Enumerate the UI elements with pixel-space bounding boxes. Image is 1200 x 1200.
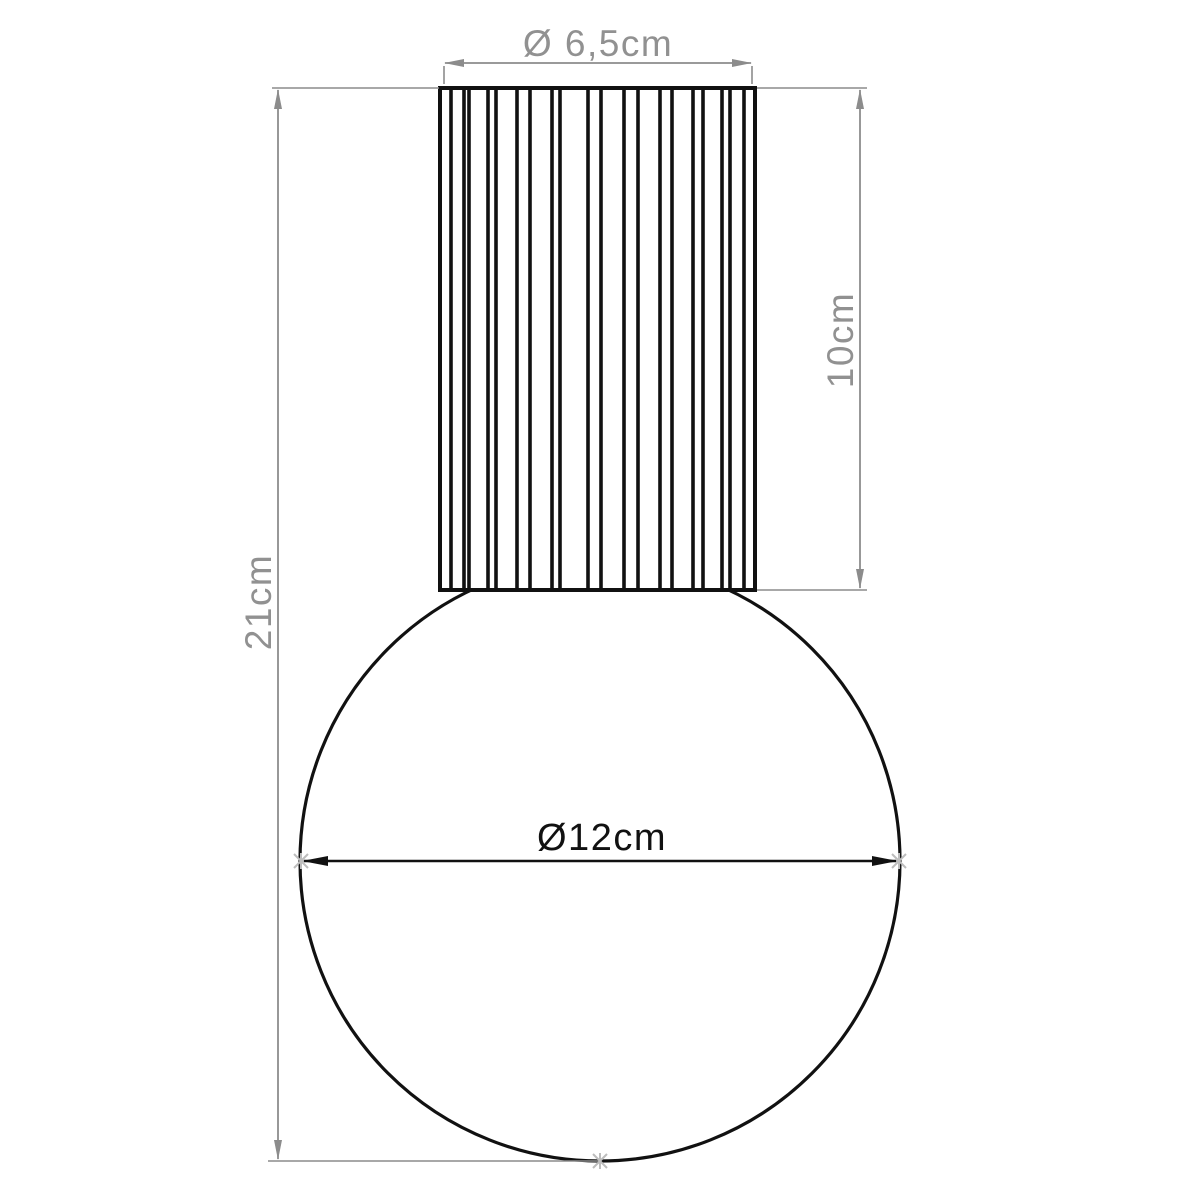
lamp-dimension-drawing: Ø 6,5cm 21cm 10cm Ø12cm: [0, 0, 1200, 1200]
arrow-right-icon: [732, 59, 752, 67]
total-height-label: 21cm: [238, 554, 279, 650]
shade-height-label: 10cm: [820, 292, 861, 388]
arrow-left-icon: [444, 59, 464, 67]
arrow-down-icon: [274, 1140, 282, 1160]
arrow-down-icon: [856, 569, 864, 589]
arrow-up-icon: [274, 89, 282, 109]
fluted-cylinder: [440, 88, 755, 590]
shade-diameter-label: Ø 6,5cm: [523, 23, 673, 64]
dimension-shade-diameter: Ø 6,5cm: [444, 23, 752, 84]
drawing-canvas: Ø 6,5cm 21cm 10cm Ø12cm: [0, 0, 1200, 1200]
globe-diameter-label: Ø12cm: [537, 817, 667, 859]
dimension-shade-height: 10cm: [757, 88, 867, 590]
arrow-up-icon: [856, 89, 864, 109]
